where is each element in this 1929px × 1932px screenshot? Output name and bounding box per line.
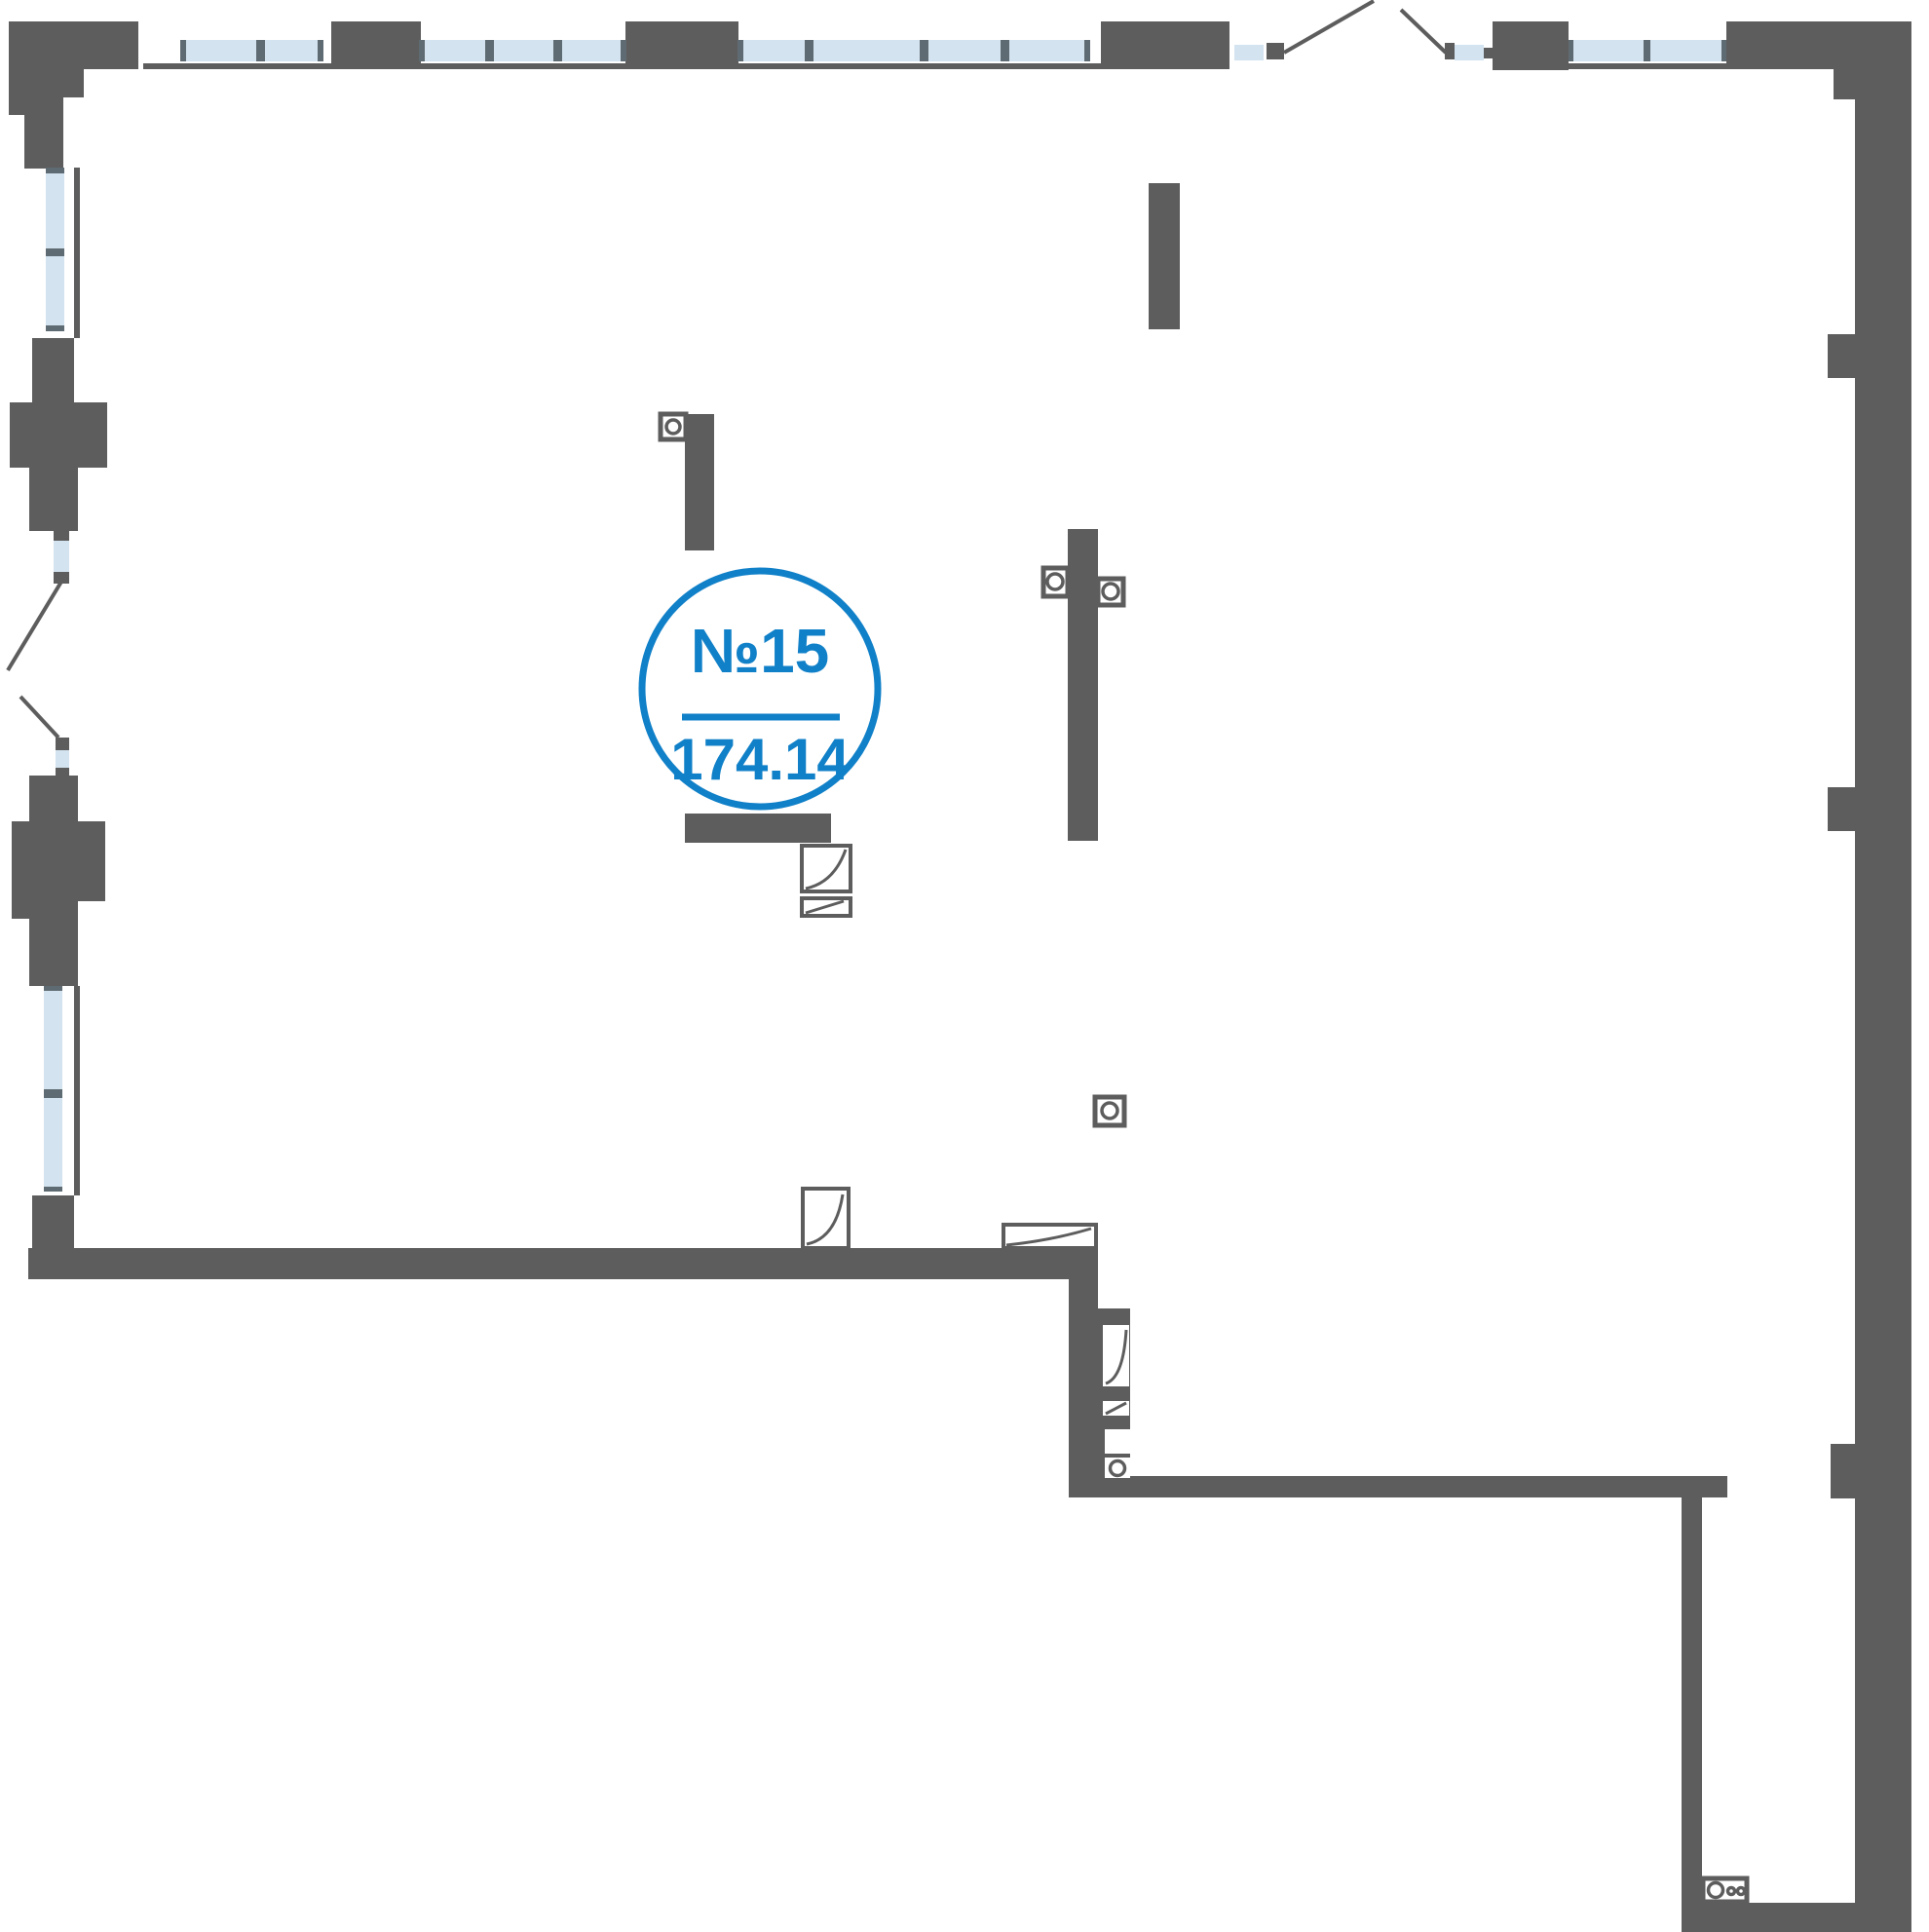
window-mullion <box>553 40 562 61</box>
floorplan-page: №15 174.14 <box>0 0 1929 1932</box>
wall-opening <box>1105 1429 1130 1454</box>
wall-segment <box>9 97 63 115</box>
wall-segment <box>9 69 84 97</box>
wall-segment <box>625 21 738 69</box>
wall-segment <box>29 468 78 531</box>
wall-segment <box>1101 21 1229 69</box>
wall-segment <box>56 738 69 750</box>
window-mullion <box>46 248 64 256</box>
window-glass <box>1455 45 1484 60</box>
vent-fixture-box <box>661 414 686 439</box>
window-mullion <box>46 168 64 173</box>
wall-segment <box>1682 1491 1702 1932</box>
window-mullion <box>1644 40 1650 61</box>
wall-segment <box>1855 99 1911 1932</box>
wall-segment <box>1834 69 1911 99</box>
wall-segment <box>10 402 107 468</box>
window-mullion <box>44 1187 62 1192</box>
unit-number-label: №15 <box>691 616 830 686</box>
window-mullion <box>1084 40 1090 61</box>
plan-geometry <box>8 1 1911 1932</box>
wall-segment <box>685 414 714 550</box>
unit-area-value: 174.14 <box>670 727 850 792</box>
wall-segment <box>32 338 74 402</box>
door-swing-line <box>1401 10 1446 53</box>
window-glass <box>56 750 69 768</box>
window-glass <box>54 541 69 572</box>
window-mullion <box>1001 40 1009 61</box>
wall-segment <box>1828 334 1855 378</box>
wall-segment <box>1267 43 1284 59</box>
wall-segment <box>32 1195 74 1254</box>
window-mullion <box>44 986 62 991</box>
window-mullion <box>256 40 265 61</box>
window-mullion <box>318 40 323 61</box>
wall-segment <box>143 63 331 69</box>
wall-segment <box>29 919 78 986</box>
wall-segment <box>74 168 80 338</box>
wall-segment <box>9 21 138 69</box>
window-mullion <box>621 40 626 61</box>
wall-segment <box>1726 21 1911 69</box>
window-mullion <box>46 325 64 331</box>
door-swing-line <box>20 697 58 738</box>
wall-segment <box>331 21 421 69</box>
window-mullion <box>485 40 494 61</box>
wall-segment <box>74 986 80 1195</box>
window-mullion <box>44 1089 62 1098</box>
window-glass <box>185 40 318 61</box>
wall-segment <box>1069 1248 1098 1497</box>
unit-badge[interactable]: №15 174.14 <box>642 571 878 807</box>
window-glass <box>1234 45 1264 60</box>
wall-segment <box>1569 63 1726 69</box>
window-mullion <box>180 40 186 61</box>
door-swing-line <box>1284 1 1374 53</box>
wall-segment <box>1484 48 1493 58</box>
window-mullion <box>1569 40 1573 61</box>
door-swing-line <box>8 582 61 670</box>
wall-segment <box>1828 787 1855 831</box>
floorplan-svg: №15 174.14 <box>0 0 1929 1932</box>
wall-segment <box>1831 1444 1859 1498</box>
wall-segment <box>421 63 625 69</box>
wall-segment <box>685 814 831 843</box>
window-mullion <box>1721 40 1726 61</box>
window-mullion <box>805 40 813 61</box>
wall-segment <box>29 776 78 821</box>
window-mullion <box>738 40 743 61</box>
window-glass <box>424 40 621 61</box>
wall-segment <box>12 821 105 901</box>
wall-segment <box>1068 529 1098 841</box>
wall-segment <box>1069 1476 1727 1497</box>
wall-segment <box>24 115 63 169</box>
wall-segment <box>738 63 1101 69</box>
wall-segment <box>28 1248 1069 1279</box>
wall-segment <box>12 901 78 919</box>
window-mullion <box>920 40 928 61</box>
wall-segment <box>54 531 69 541</box>
window-glass <box>742 40 1084 61</box>
wall-segment <box>1493 21 1569 70</box>
window-mullion <box>419 40 425 61</box>
wall-segment <box>1149 183 1180 329</box>
wall-segment <box>56 768 69 776</box>
